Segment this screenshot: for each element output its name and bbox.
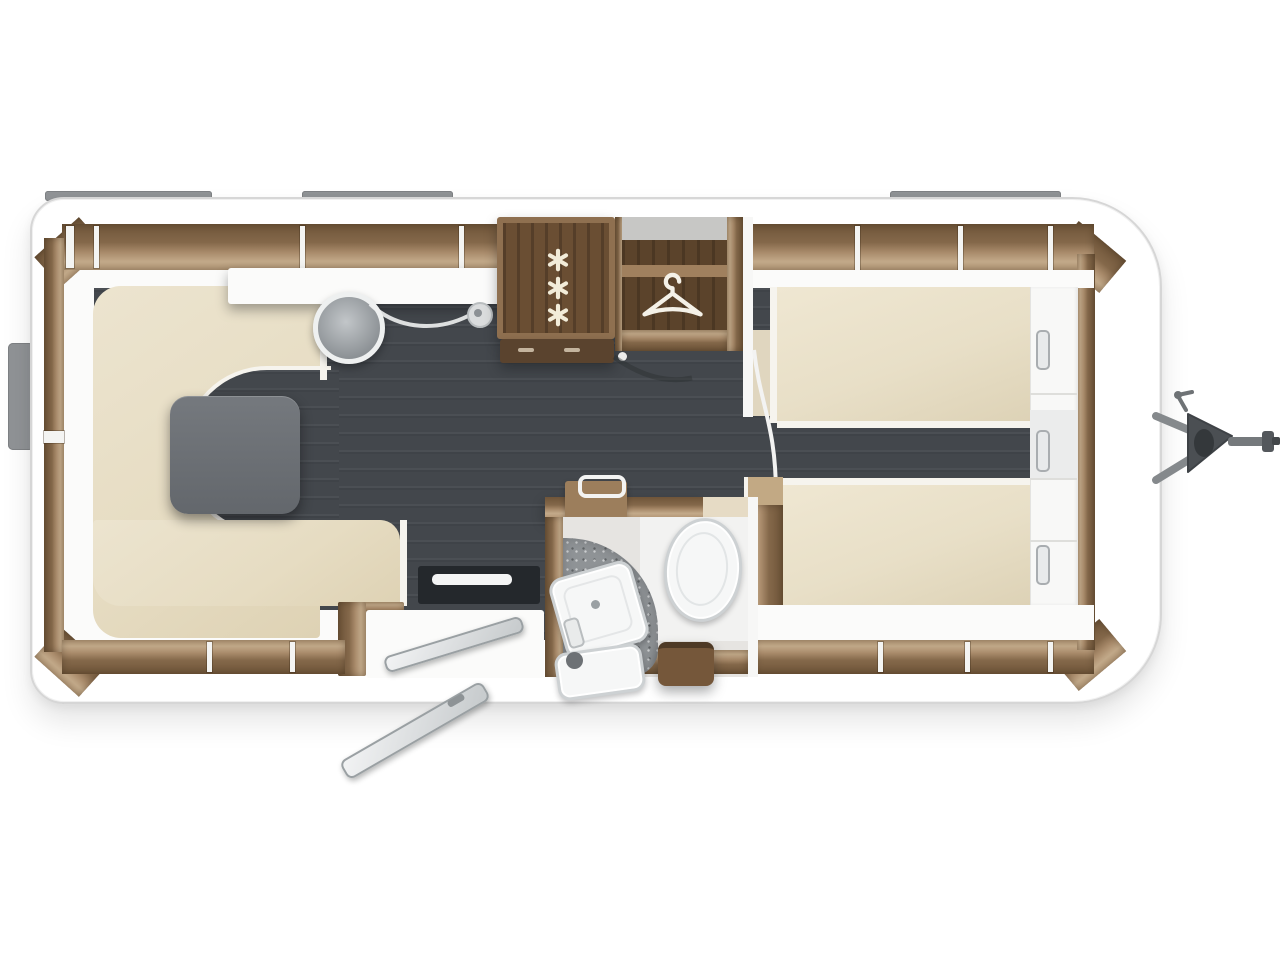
locker-divider — [290, 642, 295, 672]
lounge-seat — [93, 520, 400, 606]
bathroom-wall — [748, 497, 758, 677]
wardrobe-wall — [727, 217, 743, 351]
cabinet-seam — [1030, 478, 1077, 480]
caravan-floorplan — [0, 0, 1280, 960]
bed-edge-trim — [777, 421, 1030, 428]
cabinet-handle — [1036, 545, 1050, 585]
entry-step-well — [418, 566, 540, 604]
dinette-table — [170, 396, 300, 514]
single-bed-top — [777, 287, 1030, 423]
faucet-icon — [474, 309, 482, 317]
locker-divider — [1048, 642, 1053, 672]
clothes-hanger-icon — [635, 272, 711, 332]
cabinet-handle — [1036, 430, 1050, 472]
seat-edge-trim — [400, 520, 407, 606]
overhead-lockers-front — [1077, 254, 1095, 650]
bathroom-stool — [658, 642, 714, 686]
locker-divider — [300, 226, 305, 268]
locker-divider — [878, 642, 883, 672]
locker-divider — [1048, 226, 1053, 270]
locker-divider — [958, 226, 963, 270]
wardrobe-top — [622, 217, 727, 241]
bed-edge-trim — [770, 287, 777, 423]
locker-divider — [459, 226, 464, 268]
bed-edge-trim — [777, 478, 1030, 485]
counter-edge-line — [360, 296, 480, 342]
drawer-handle — [518, 348, 534, 352]
cabinet-seam — [1030, 540, 1077, 542]
overhead-lockers-rear — [44, 238, 64, 652]
shelf-strip — [753, 605, 1094, 640]
tow-hitch-icon — [1152, 388, 1280, 498]
locker-divider — [94, 226, 99, 268]
cabinet-handle — [1036, 330, 1050, 370]
door-swing-arc — [600, 352, 700, 388]
drain-dot — [591, 600, 600, 609]
locker-divider — [965, 642, 970, 672]
locker-divider — [44, 431, 64, 443]
locker-divider — [855, 226, 860, 270]
cabinet-seam — [1030, 393, 1077, 395]
gas-burner-icon — [546, 248, 570, 272]
wardrobe-base — [622, 330, 727, 351]
locker-divider — [207, 642, 212, 672]
lid-handle — [578, 475, 626, 498]
entry-step-icon — [432, 574, 512, 585]
overhead-lockers-bottom — [755, 640, 1094, 674]
single-bed-bottom — [783, 485, 1030, 605]
shelf-strip — [753, 270, 1094, 288]
drawer-handle — [564, 348, 580, 352]
wall-strip — [62, 232, 94, 652]
locker-divider — [66, 226, 74, 268]
overhead-lockers-bottom — [62, 640, 345, 674]
kitchen-drawer — [500, 339, 614, 363]
gas-burner-icon — [546, 303, 570, 327]
basin-faucet — [566, 652, 583, 669]
gas-burner-icon — [546, 276, 570, 300]
